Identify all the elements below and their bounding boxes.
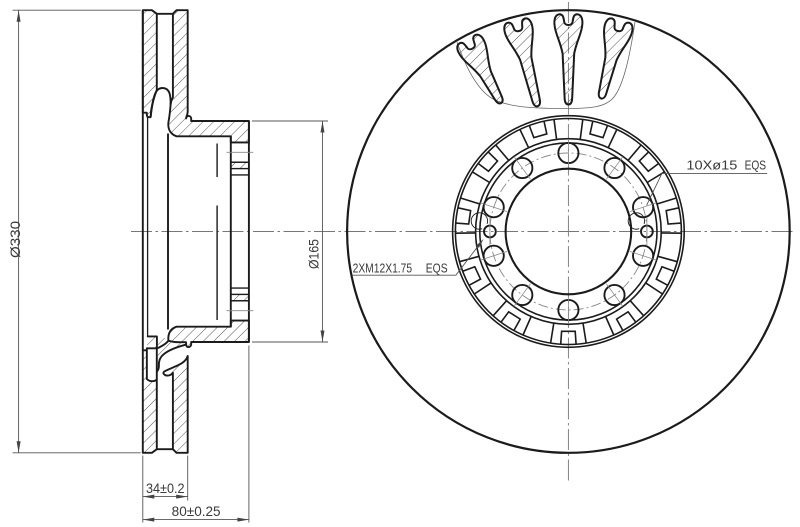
svg-text:34±0.2: 34±0.2: [146, 481, 185, 496]
svg-text:Ø165: Ø165: [307, 239, 322, 269]
svg-text:2XM12X1.75: 2XM12X1.75: [353, 261, 413, 276]
svg-text:EQS: EQS: [745, 157, 767, 172]
svg-text:80±0.25: 80±0.25: [172, 504, 221, 519]
svg-text:Ø330: Ø330: [8, 221, 23, 258]
svg-text:10Xø15: 10Xø15: [686, 157, 737, 172]
svg-text:EQS: EQS: [426, 261, 448, 276]
